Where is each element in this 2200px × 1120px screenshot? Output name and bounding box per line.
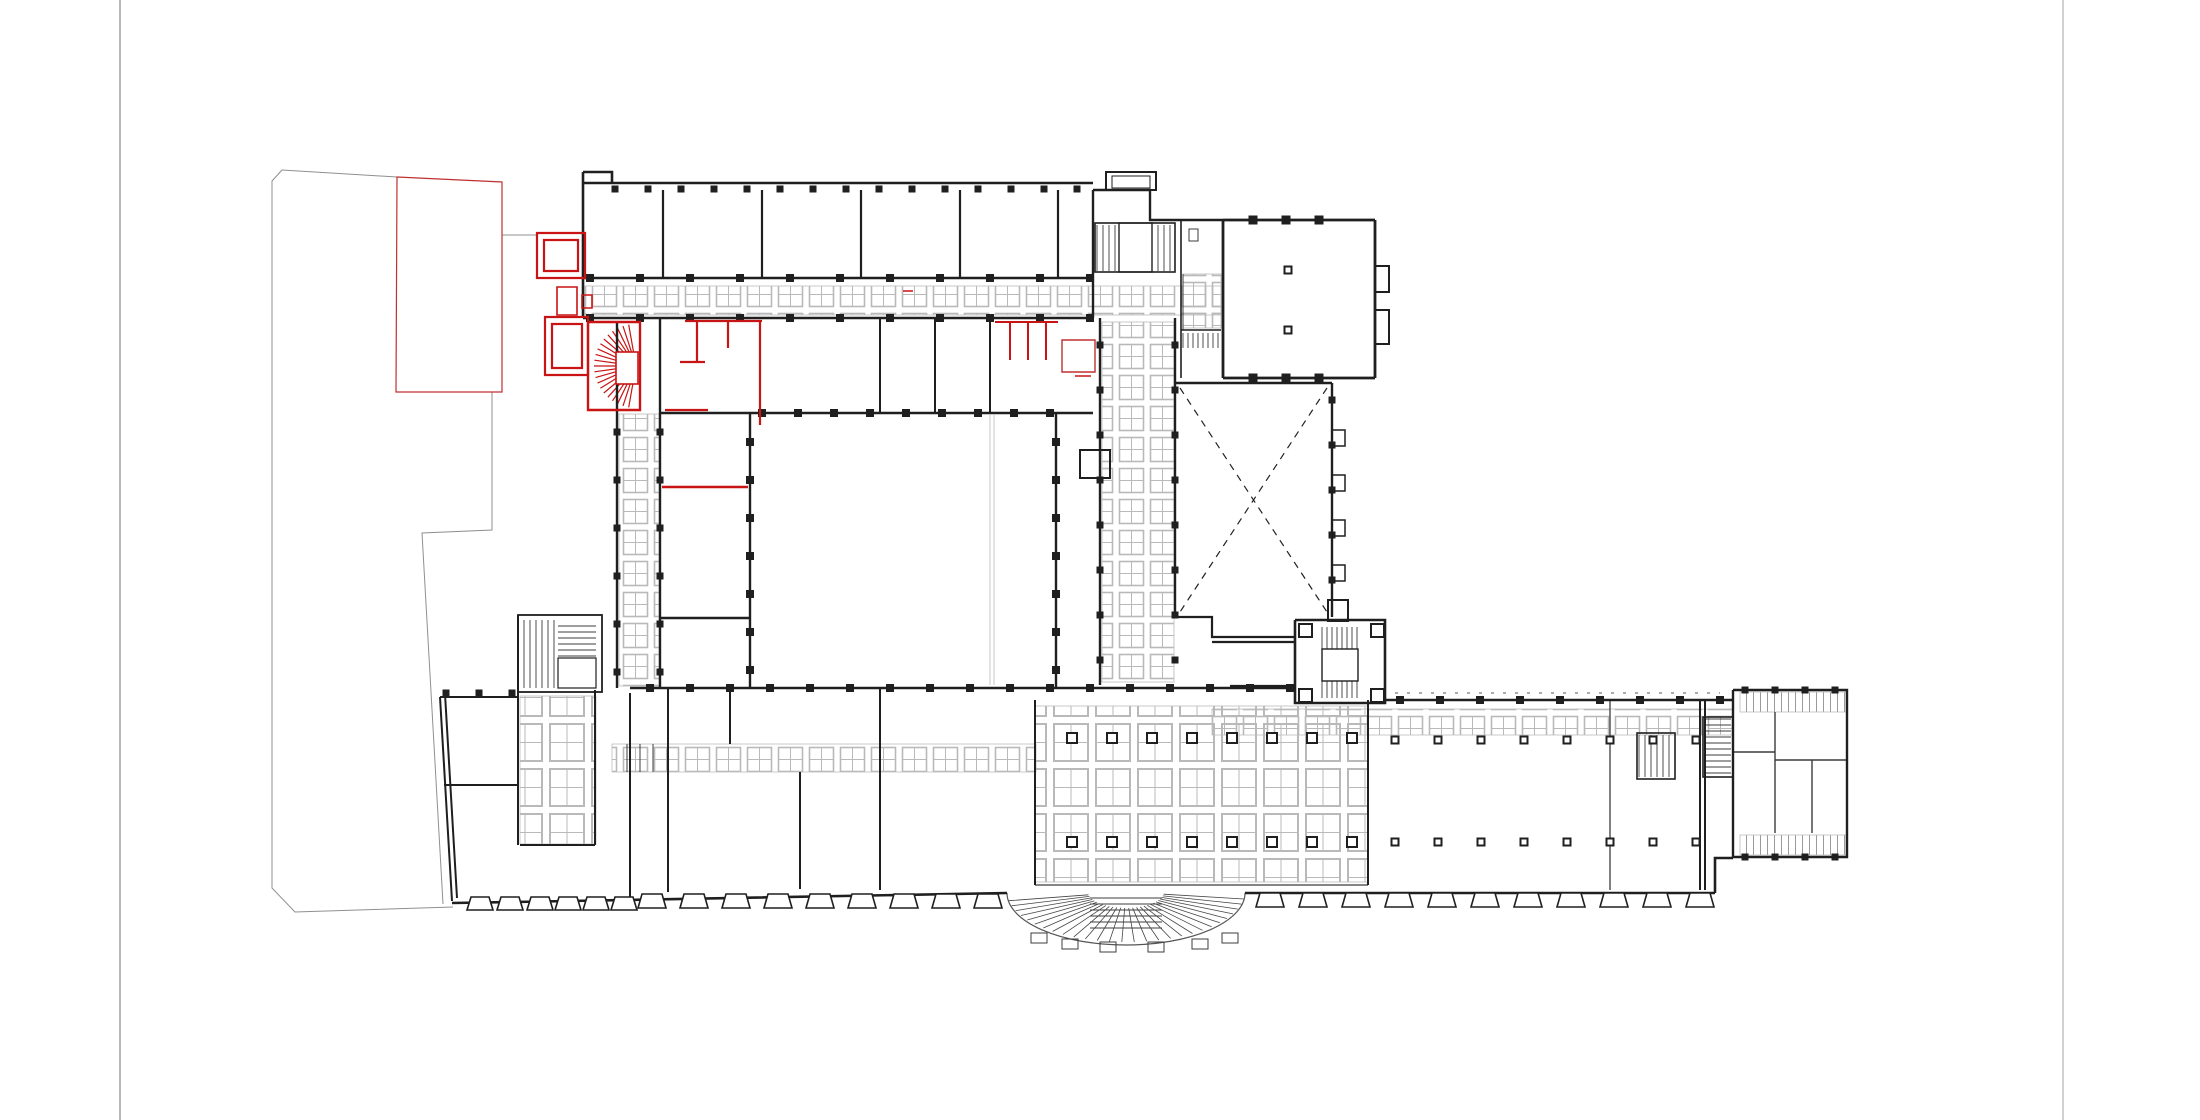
dashed-void-layer	[1180, 388, 1720, 693]
sheet-divider-lines-layer	[120, 0, 2063, 1120]
drawing-sheet	[0, 0, 2200, 1120]
hatch-ceiling-layer	[520, 274, 1846, 882]
floor-plan-svg	[0, 0, 2200, 1120]
